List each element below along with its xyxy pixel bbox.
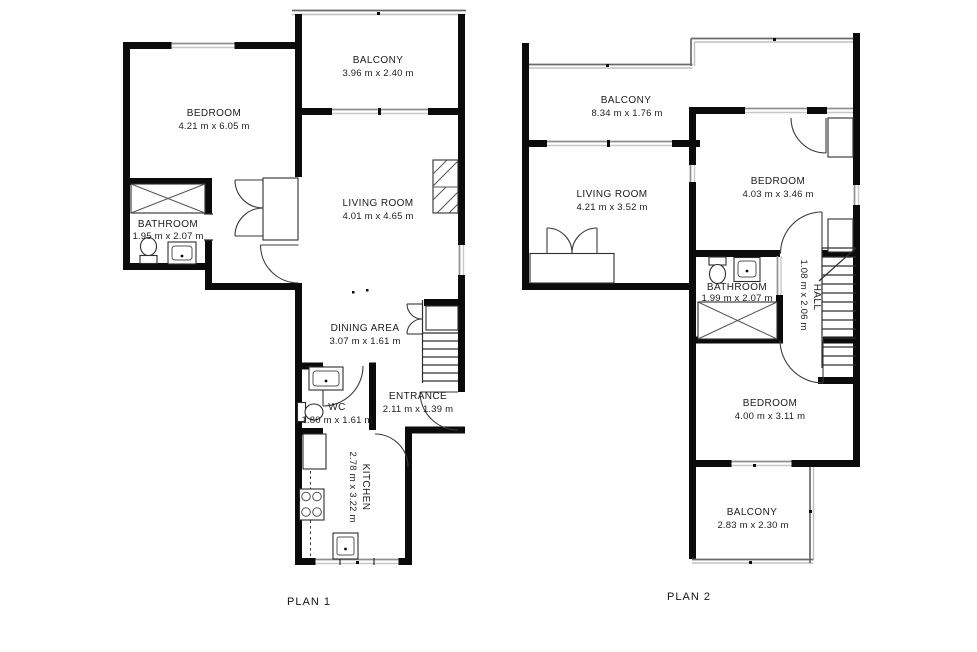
bedroom-top-closet <box>791 118 853 157</box>
room-dims-bedroom-top: 4.03 m x 3.46 m <box>742 189 813 200</box>
bedroom-door <box>261 245 299 283</box>
bedroom-side-window <box>855 185 859 205</box>
room-dims-dining-area: 3.07 m x 1.61 m <box>329 336 400 347</box>
bathroom2-toilet <box>709 257 726 284</box>
stairs-top-closet <box>828 219 853 252</box>
room-dims-balcony-bottom: 2.83 m x 2.30 m <box>717 520 788 531</box>
plan1-walls <box>123 14 465 565</box>
bedroom-top-window <box>745 109 807 113</box>
bedroom-bottom-balcony-window <box>729 460 794 467</box>
room-dims-bathroom2: 1.99 m x 2.07 m <box>701 293 772 304</box>
stairs-closet-doors <box>407 304 422 334</box>
room-label-bathroom2: BATHROOM <box>707 282 767 293</box>
plan2-title: PLAN 2 <box>667 591 711 603</box>
room-dims-living-room2: 4.21 m x 3.52 m <box>576 202 647 213</box>
room-label-balcony-top: BALCONY <box>601 95 652 106</box>
room-label-living-room2: LIVING ROOM <box>576 189 647 200</box>
living-room-closet <box>530 228 614 283</box>
living-bedroom-opening <box>691 165 695 182</box>
room-dims-bathroom: 1.95 m x 2.07 m <box>132 231 203 242</box>
plan2-balcony-railing <box>529 39 853 69</box>
room-dims-living-room: 4.01 m x 4.65 m <box>342 211 413 222</box>
floorplan-canvas: BALCONY 3.96 m x 2.40 m BEDROOM 4.21 m x… <box>0 0 977 652</box>
room-label-balcony-bottom: BALCONY <box>727 507 778 518</box>
bedroom-top-window-2 <box>827 109 853 113</box>
kitchen-sink <box>333 533 358 559</box>
balcony-door-window <box>332 108 428 115</box>
room-label-bedroom-top: BEDROOM <box>751 176 805 187</box>
plan2: BALCONY 8.34 m x 1.76 m LIVING ROOM 4.21… <box>522 33 860 603</box>
room-dims-wc: 1.80 m x 1.61 m <box>301 415 372 426</box>
room-dims-bedroom: 4.21 m x 6.05 m <box>178 121 249 132</box>
room-label-living-room: LIVING ROOM <box>342 198 413 209</box>
kitchen-door <box>375 434 408 467</box>
bathroom-door-opening <box>778 256 782 295</box>
fireplace <box>433 160 458 213</box>
stove <box>300 489 325 520</box>
living-room-window <box>460 245 464 275</box>
bathroom2-sink <box>734 258 760 282</box>
room-label-entrance: ENTRANCE <box>389 391 447 402</box>
bathroom-sink <box>168 242 196 264</box>
room-dims-kitchen: 2.78 m x 3.22 m <box>347 451 358 522</box>
shower <box>698 302 777 339</box>
room-label-balcony: BALCONY <box>353 55 404 66</box>
wc-sink <box>309 367 343 390</box>
room-dims-bedroom-bottom: 4.00 m x 3.11 m <box>735 411 805 422</box>
room-label-bedroom: BEDROOM <box>187 108 241 119</box>
plan2-stairs <box>819 248 856 368</box>
plan1-stairs <box>423 300 459 383</box>
living-room-balcony-window <box>547 140 672 147</box>
bedroom-top-door <box>781 212 823 254</box>
room-label-kitchen: KITCHEN <box>360 464 371 511</box>
plan1: BALCONY 3.96 m x 2.40 m BEDROOM 4.21 m x… <box>123 11 466 609</box>
room-label-dining-area: DINING AREA <box>331 323 400 334</box>
room-dims-balcony-top: 8.34 m x 1.76 m <box>591 108 662 119</box>
room-label-wc: WC <box>328 402 345 413</box>
floorplan-image: BALCONY 3.96 m x 2.40 m BEDROOM 4.21 m x… <box>0 0 977 652</box>
bathroom-door <box>204 214 213 240</box>
plan1-title: PLAN 1 <box>287 596 331 608</box>
bedroom-bottom-door <box>780 340 823 383</box>
room-dims-entrance: 2.11 m x 1.39 m <box>383 404 453 415</box>
bedroom-window <box>169 42 237 49</box>
room-label-hall: HALL <box>811 284 822 311</box>
room-label-bedroom-bottom: BEDROOM <box>743 398 797 409</box>
bedroom-closet-doors <box>235 178 298 240</box>
room-dims-balcony: 3.96 m x 2.40 m <box>342 68 413 79</box>
room-dims-hall: 1.08 m x 2.06 m <box>798 259 809 330</box>
bathtub <box>131 184 205 213</box>
room-label-bathroom: BATHROOM <box>138 219 198 230</box>
